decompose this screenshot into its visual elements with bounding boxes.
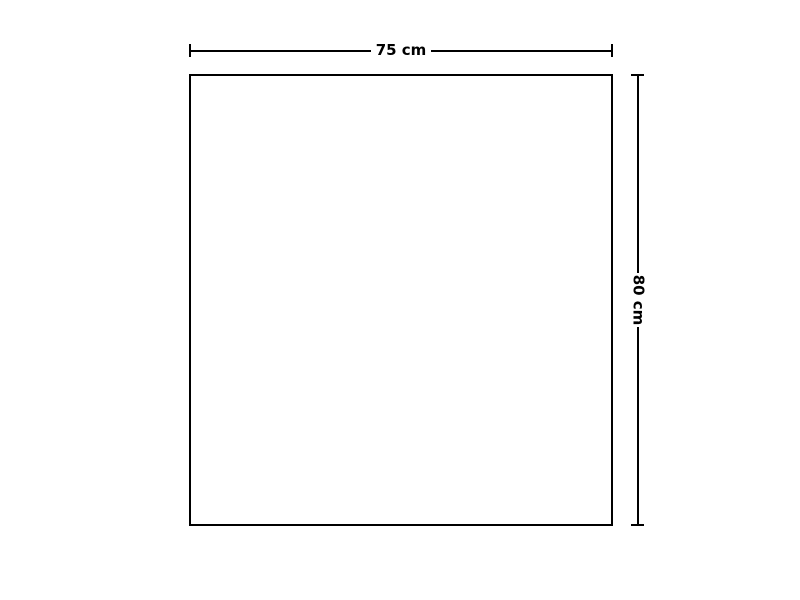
- height-dimension-label-box: 80 cm: [631, 273, 644, 327]
- height-dimension-label: 80 cm: [630, 275, 645, 326]
- dimension-line-top-segment: [637, 76, 639, 273]
- dimension-line-bottom-segment: [637, 327, 639, 524]
- diagram-canvas: 75 cm 80 cm: [0, 0, 800, 600]
- dimensioned-rectangle: [189, 74, 613, 526]
- dimension-end-tick-right: [611, 44, 613, 57]
- dimension-line-right-segment: [431, 50, 611, 52]
- dimension-end-tick-bottom: [631, 524, 644, 526]
- height-dimension: 80 cm: [631, 74, 644, 526]
- dimension-line-left-segment: [191, 50, 371, 52]
- width-dimension: 75 cm: [189, 44, 613, 57]
- width-dimension-label: 75 cm: [371, 43, 432, 58]
